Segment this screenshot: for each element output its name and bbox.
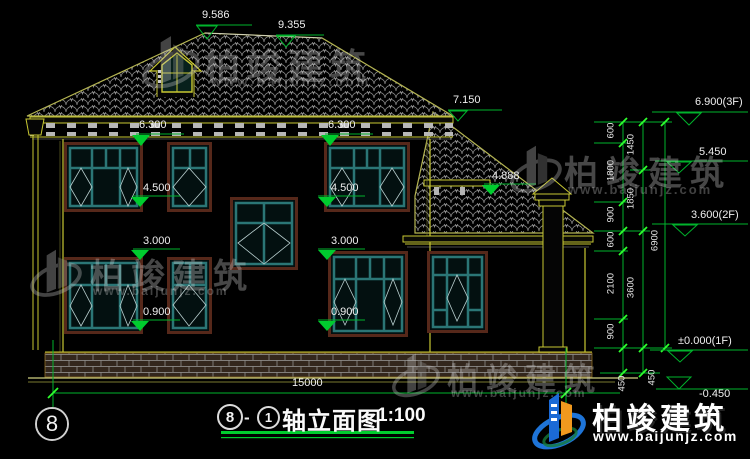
wing-eave-cornice: [403, 236, 593, 247]
dim-label: 3.000: [331, 235, 359, 247]
chain-dim-label: 450: [647, 356, 658, 400]
dim-label: 6.300: [139, 119, 167, 131]
window-2f-mid: [169, 144, 211, 211]
dim-label: 6.300: [328, 119, 356, 131]
dim-label: 0.900: [331, 306, 359, 318]
dim-label: 4.500: [331, 182, 359, 194]
dim-label: 9.355: [278, 19, 306, 31]
width-dim-label: 15000: [292, 377, 323, 389]
elevation-drawing: [0, 0, 750, 459]
watermark-url: www.baijunjz.com: [93, 284, 229, 298]
title-bubble-8: 8: [217, 404, 243, 430]
window-1f-right: [330, 253, 407, 336]
drawing-title: 轴立面图: [282, 401, 382, 436]
brand-logo-icon: [530, 390, 590, 454]
chimney: [533, 178, 571, 353]
chain-dim-label: 900: [606, 310, 617, 354]
watermark-logo-icon: [508, 142, 564, 198]
cad-elevation-screenshot: 9.586 9.355 7.150 6.300 6.300 4.500 4.50…: [0, 0, 750, 459]
window-2f-right: [326, 144, 409, 211]
watermark-logo-icon: [138, 32, 204, 94]
gutter-downspout: [26, 119, 44, 350]
chain-total-label: 6900: [650, 219, 661, 263]
brand-logo-url: www.baijunjz.com: [593, 428, 738, 444]
dim-label: 9.586: [202, 9, 230, 21]
main-eave-cornice: [30, 117, 453, 139]
level-label: ±0.000(1F): [678, 335, 732, 347]
watermark-url: www.baijunjz.com: [568, 182, 712, 197]
dim-label: 7.150: [453, 94, 481, 106]
chain-dim-label: 2100: [606, 262, 617, 306]
chain-dim-label: 3600: [626, 266, 637, 310]
dim-label: 3.000: [143, 235, 171, 247]
window-wing: [429, 253, 487, 332]
chain-dim-label: 600: [606, 218, 617, 262]
axis-bubble-8: 8: [37, 409, 67, 439]
watermark-logo-icon: [28, 246, 84, 302]
watermark-logo-icon: [390, 350, 442, 402]
title-bubble-1: 1: [257, 406, 280, 429]
window-2f-left: [66, 144, 142, 211]
dim-label: 0.900: [143, 306, 171, 318]
level-label: 3.600(2F): [691, 209, 739, 221]
title-dash: -: [244, 408, 250, 428]
drawing-scale: 1:100: [377, 405, 426, 427]
watermark-url: www.baijunjz.com: [211, 74, 371, 89]
level-label: 6.900(3F): [695, 96, 743, 108]
dim-label: 4.500: [143, 182, 171, 194]
